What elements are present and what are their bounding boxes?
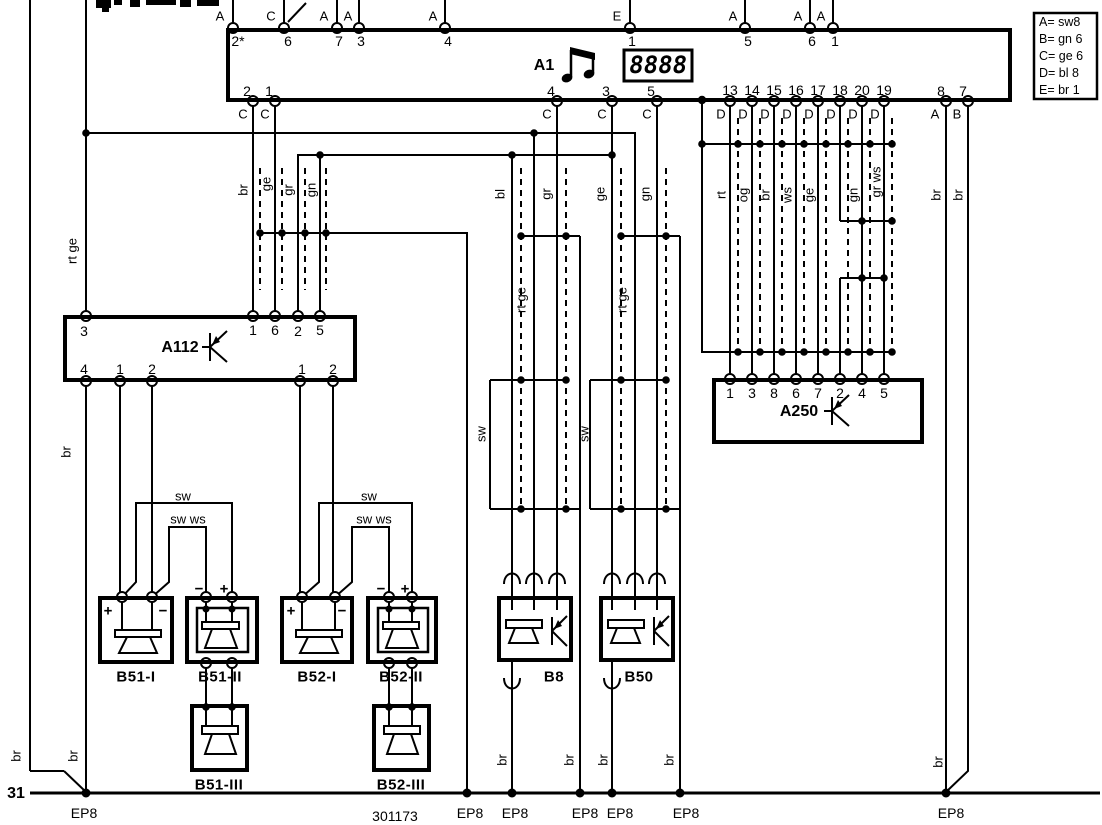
wire-color-label: br	[237, 184, 250, 196]
pin-number: 19	[876, 83, 892, 97]
component-label: B51-II	[198, 670, 242, 685]
pin-number: 3	[602, 84, 610, 98]
pin-number: 1	[726, 386, 734, 400]
ground-point-label: EP8	[673, 806, 699, 820]
pin-number: 2	[329, 362, 337, 376]
polarity-mark: +	[220, 582, 229, 597]
junction-dots	[82, 96, 951, 798]
diagram-part-number: 301173	[372, 808, 418, 824]
connector-letter: C	[597, 108, 606, 121]
wire-color-label: ge	[260, 177, 273, 191]
ground-point-label: EP8	[572, 806, 598, 820]
pin-number: 6	[808, 34, 816, 48]
pin-number: 2	[836, 386, 844, 400]
ground-point-label: EP8	[607, 806, 633, 820]
pin-number: 1	[116, 362, 124, 376]
polarity-mark: −	[159, 604, 168, 619]
wire-color-label: sw ws	[356, 513, 391, 526]
pin-number: 15	[766, 83, 782, 97]
pin-number: 1	[249, 323, 257, 337]
connector-letter: D	[716, 108, 725, 121]
pin-number: 13	[722, 83, 738, 97]
component-label: B52-II	[379, 670, 423, 685]
wiring-diagram: A1 8888 A112 A250 31 301173 2*6734156121…	[0, 0, 1102, 825]
component-box-a1	[228, 30, 1010, 100]
wire-color-label: br	[952, 189, 965, 201]
wire-color-label: rt ge	[66, 238, 79, 264]
wire-color-label: sw	[475, 426, 488, 442]
pin-number: 2	[294, 324, 302, 338]
connector-letter: C	[238, 108, 247, 121]
wire-color-label: ge	[594, 187, 607, 201]
shield-wires	[260, 118, 892, 509]
connector-letter: A	[817, 10, 826, 23]
component-label: B52-III	[377, 778, 426, 793]
wire-color-label: gr	[540, 188, 553, 200]
pin-number: 5	[647, 84, 655, 98]
connector-letter: A	[729, 10, 738, 23]
polarity-mark: −	[195, 582, 204, 597]
wire-color-label: sw	[175, 490, 191, 503]
pin-number: 6	[792, 386, 800, 400]
wire-color-label: bl	[494, 189, 507, 199]
component-label-a1: A1	[534, 57, 554, 75]
wire-color-label: gn	[847, 188, 860, 202]
component-label: B52-I	[297, 670, 336, 685]
pin-number: 2	[243, 84, 251, 98]
pin-number: 8	[770, 386, 778, 400]
connector-letter: D	[870, 108, 879, 121]
pin-number: 17	[810, 83, 826, 97]
connector-letter: E	[613, 10, 622, 23]
music-note-icon	[560, 47, 595, 84]
component-label: B8	[544, 670, 564, 685]
legend-row: E= br 1	[1039, 83, 1080, 97]
wire-color-label: og	[737, 188, 750, 202]
ground-point-label: EP8	[938, 806, 964, 820]
connector-letter: A	[216, 10, 225, 23]
connector-letter: D	[738, 108, 747, 121]
seven-segment-display: 8888	[624, 52, 692, 79]
connector-letter: C	[642, 108, 651, 121]
component-label: B51-III	[195, 778, 244, 793]
wire-color-label: br	[10, 750, 23, 762]
component-label-a250: A250	[780, 403, 818, 421]
pin-number: 4	[444, 34, 452, 48]
legend-row: A= sw8	[1039, 15, 1080, 29]
connector-letter: C	[542, 108, 551, 121]
connector-letter: C	[260, 108, 269, 121]
wire-color-label: br	[563, 754, 576, 766]
pin-number: 3	[748, 386, 756, 400]
connector-letter: A	[429, 10, 438, 23]
pin-number: 3	[357, 34, 365, 48]
component-label: B51-I	[116, 670, 155, 685]
pin-number: 18	[832, 83, 848, 97]
polarity-mark: +	[401, 582, 410, 597]
wire-color-label: rt ge	[515, 287, 528, 313]
wire-color-label: gn	[639, 187, 652, 201]
wire-color-label: br	[496, 754, 509, 766]
connector-letter: D	[804, 108, 813, 121]
connector-letter: A	[344, 10, 353, 23]
wire-color-label: sw ws	[170, 513, 205, 526]
cropped-text-fragment	[96, 0, 219, 12]
wire-color-label: br	[930, 189, 943, 201]
pin-number: 6	[271, 323, 279, 337]
connector-letter: B	[953, 108, 962, 121]
pin-number: 5	[744, 34, 752, 48]
pin-number: 1	[298, 362, 306, 376]
wire-color-label: ws	[781, 187, 794, 203]
pin-number: 20	[854, 83, 870, 97]
pin-number: 7	[959, 84, 967, 98]
polarity-mark: +	[104, 604, 113, 619]
component-box-b51-3	[192, 706, 247, 770]
pin-number: 4	[80, 362, 88, 376]
connector-letter: D	[760, 108, 769, 121]
wire-color-label: br	[663, 754, 676, 766]
pin-number: 4	[858, 386, 866, 400]
component-box-b52-3	[374, 706, 429, 770]
pin-number: 2	[148, 362, 156, 376]
polarity-mark: −	[338, 604, 347, 619]
pin-number: 2*	[231, 34, 244, 48]
legend-row: C= ge 6	[1039, 49, 1083, 63]
ground-point-label: EP8	[457, 806, 483, 820]
polarity-mark: +	[287, 604, 296, 619]
connector-letter: A	[320, 10, 329, 23]
wire-color-label: sw	[361, 490, 377, 503]
connector-letter: A	[794, 10, 803, 23]
wire-color-label: br	[932, 756, 945, 768]
pin-number: 14	[744, 83, 760, 97]
ground-point-label: EP8	[71, 806, 97, 820]
pin-number: 5	[316, 323, 324, 337]
wire-color-label: br	[60, 446, 73, 458]
pin-number: 4	[547, 84, 555, 98]
wire-color-label: rt	[715, 191, 728, 199]
wire-color-label: gr	[282, 184, 295, 196]
pin-number: 3	[80, 324, 88, 338]
pin-number: 7	[335, 34, 343, 48]
wire-color-label: rt ge	[616, 287, 629, 313]
pin-number: 5	[880, 386, 888, 400]
connector-letter: D	[848, 108, 857, 121]
wire-color-label: gn	[305, 183, 318, 197]
wire-color-label: gr ws	[870, 166, 883, 197]
connector-letter: C	[266, 10, 275, 23]
pin-number: 16	[788, 83, 804, 97]
polarity-mark: −	[377, 582, 386, 597]
wiring-artwork	[0, 0, 1102, 825]
pin-number: 7	[814, 386, 822, 400]
pin-number: 8	[937, 84, 945, 98]
ground-point-label: EP8	[502, 806, 528, 820]
component-label: B50	[624, 670, 653, 685]
component-label-a112: A112	[161, 339, 198, 357]
connector-letter: D	[782, 108, 791, 121]
connector-letter: D	[826, 108, 835, 121]
terminal-31-label: 31	[7, 785, 25, 803]
connector-letter: A	[931, 108, 940, 121]
wire-color-label: br	[597, 754, 610, 766]
pin-number: 1	[265, 84, 273, 98]
legend-row: D= bl 8	[1039, 66, 1079, 80]
wire-color-label: br	[759, 189, 772, 201]
pin-number: 6	[284, 34, 292, 48]
wire-color-label: sw	[578, 426, 591, 442]
wire-color-label: br	[67, 750, 80, 762]
pin-number: 1	[628, 34, 636, 48]
wire-color-label: ge	[803, 188, 816, 202]
pin-number: 1	[831, 34, 839, 48]
legend-row: B= gn 6	[1039, 32, 1082, 46]
